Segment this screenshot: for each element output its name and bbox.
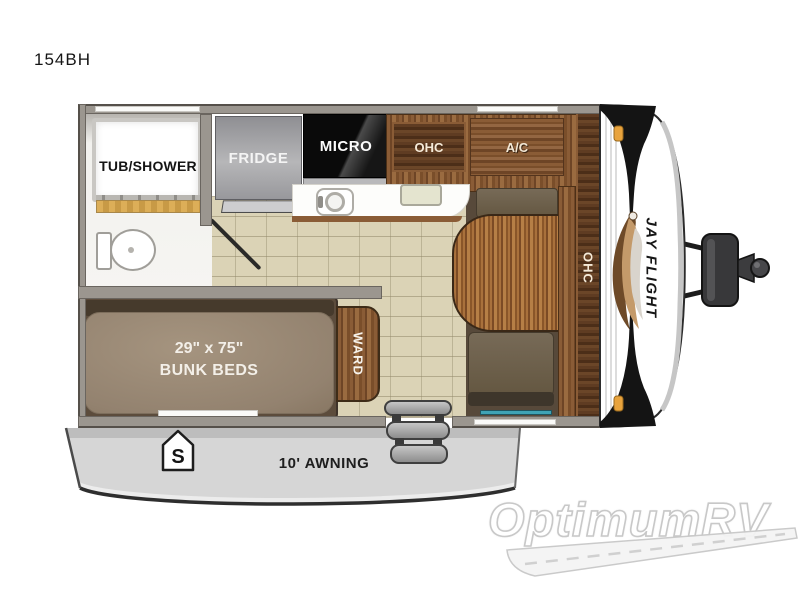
- kitchen-ohc-label: OHC: [415, 140, 444, 155]
- wall-bath-right: [200, 114, 212, 226]
- counter-wood-edge: [292, 216, 462, 222]
- kitchen-ohc-cabinet: OHC: [392, 122, 466, 172]
- dinette-table: [452, 214, 562, 332]
- floorplan-image: 154BH 10' AWNING S TUB/SHOWER FRIDGE MIC…: [0, 0, 800, 600]
- wall-rear: [78, 104, 86, 428]
- fridge-cabinet: FRIDGE: [215, 116, 302, 200]
- wall-bath-bottom: [78, 286, 382, 299]
- marker-light-icon: [614, 396, 623, 411]
- hitch-ball-icon: [751, 259, 769, 277]
- sink-bowl: [325, 192, 345, 212]
- toilet-flush-dot: [128, 247, 134, 253]
- model-label: 154BH: [34, 50, 91, 70]
- bunk-size-label: 29" x 75": [175, 338, 244, 360]
- window-bottom-right: [474, 419, 556, 425]
- ac-unit: A/C: [470, 118, 564, 176]
- entry-step-3: [390, 444, 448, 464]
- micro-label: MICRO: [320, 138, 373, 155]
- cooktop-icon: [400, 184, 442, 206]
- awning-label: 10' AWNING: [266, 455, 382, 472]
- window-top-left: [95, 106, 200, 112]
- teal-light-strip: [480, 410, 552, 415]
- dinette-side-wall: [558, 186, 576, 424]
- jayflight-logo: JAY FLIGHT: [643, 217, 660, 318]
- bunk-name-label: BUNK BEDS: [160, 360, 259, 382]
- marker-light-icon: [614, 126, 623, 141]
- wall-bottom-left: [78, 416, 386, 428]
- front-cap: [596, 100, 780, 432]
- bench-shadow: [468, 392, 554, 406]
- faucet-icon: [318, 196, 323, 208]
- entry-door-badge: S: [160, 429, 196, 473]
- watermark-road-icon: [495, 520, 800, 584]
- fridge-label: FRIDGE: [229, 150, 289, 167]
- ac-label: A/C: [506, 140, 528, 155]
- fridge-flap: [221, 200, 301, 213]
- side-ohc-label: OHC: [581, 252, 596, 284]
- bunk-labels: 29" x 75" BUNK BEDS: [84, 330, 334, 390]
- ward-label: WARD: [351, 332, 366, 376]
- window-top-right: [477, 106, 558, 112]
- tub-wood-step: [96, 200, 206, 213]
- dinette-bench-bottom: [468, 332, 554, 396]
- door-badge-letter: S: [171, 446, 184, 468]
- microwave-cabinet: MICRO: [303, 114, 389, 178]
- tub-shower-label: TUB/SHOWER: [86, 156, 210, 176]
